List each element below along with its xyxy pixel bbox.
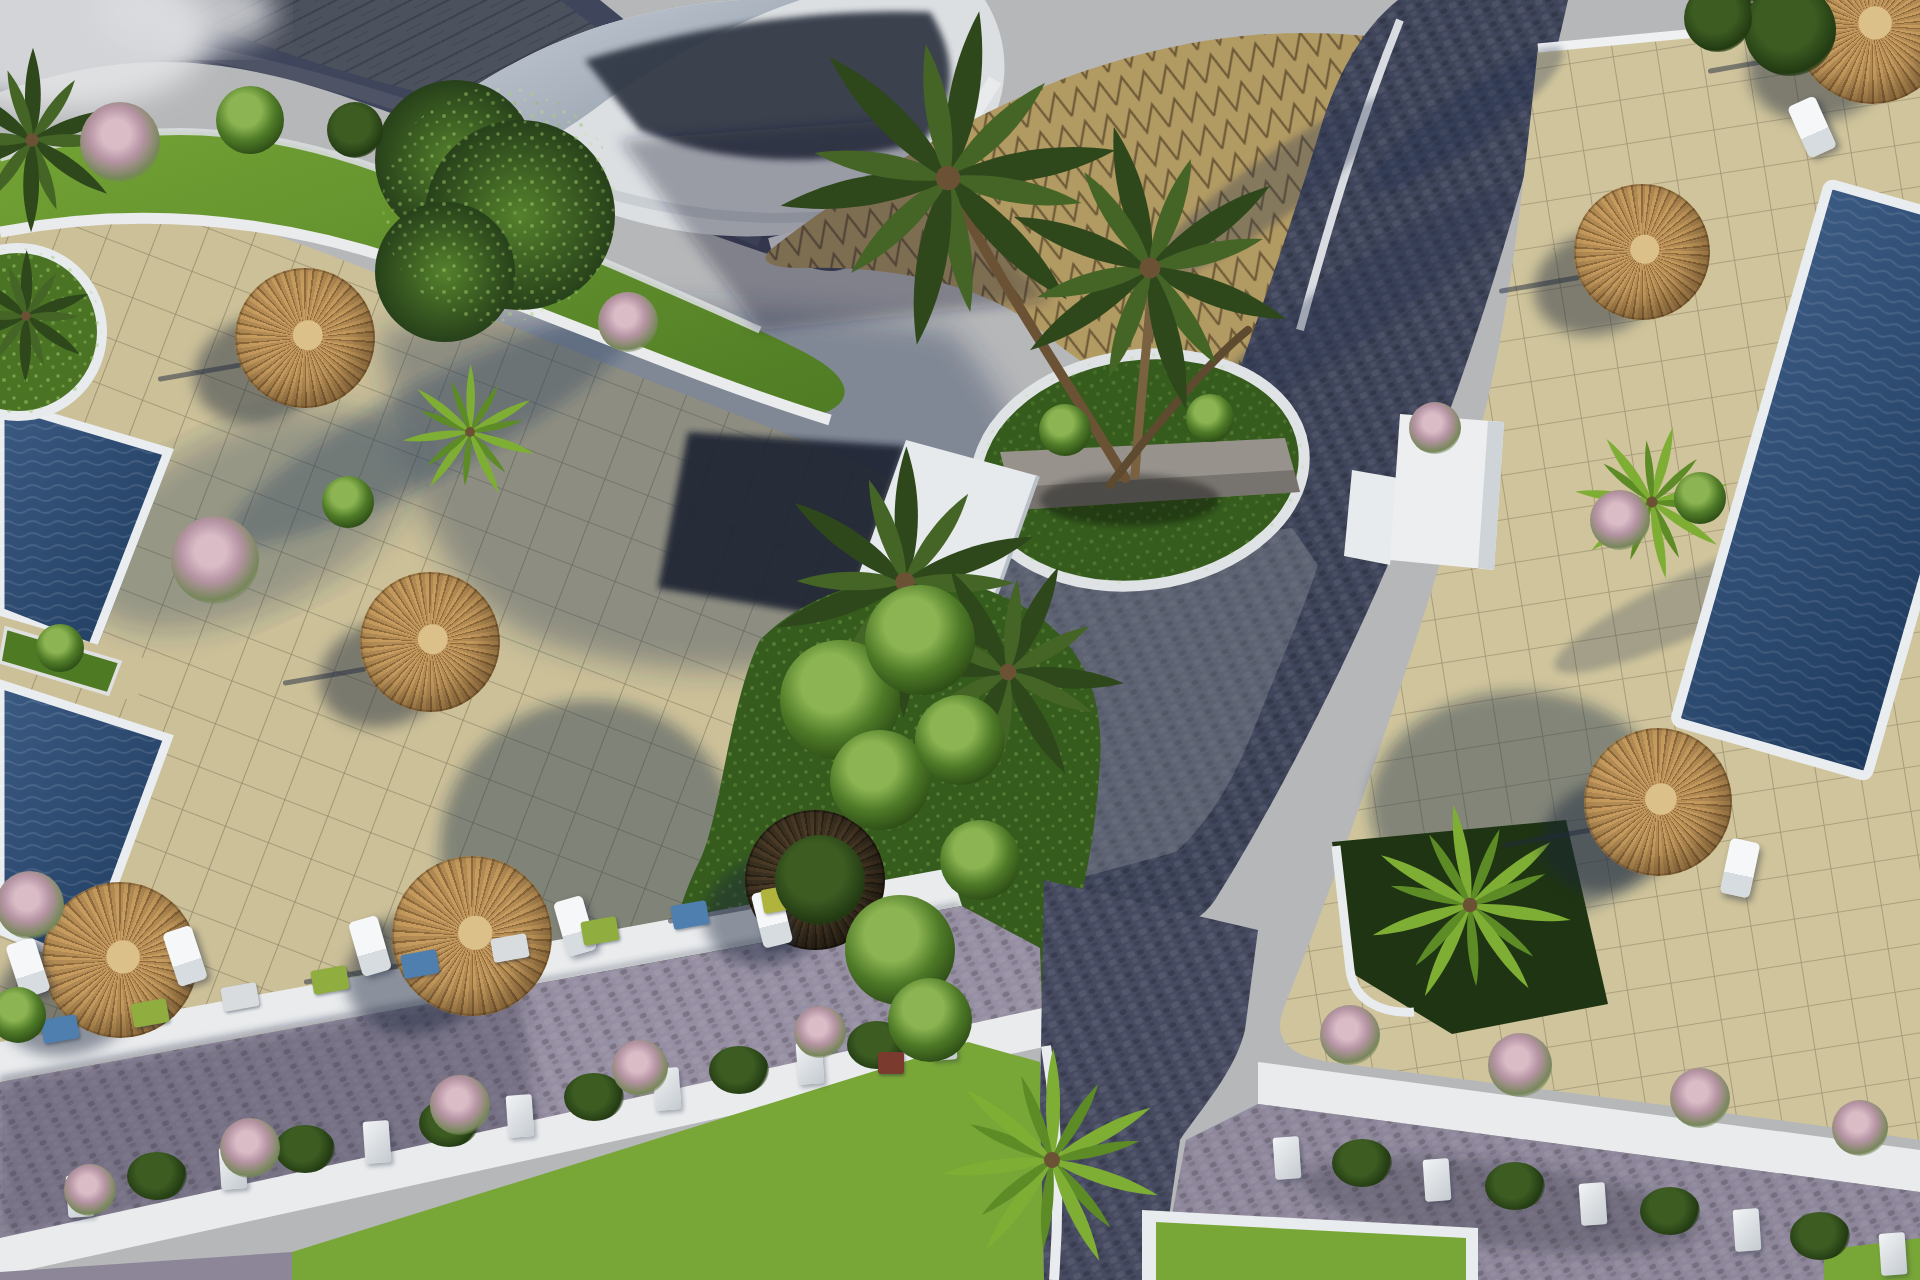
flowering-shrub: [1409, 402, 1461, 454]
flowering-shrub: [794, 1006, 846, 1058]
shrub: [36, 624, 84, 672]
parasol-straw: [1574, 184, 1710, 320]
parasol-straw: [392, 856, 552, 1016]
shrub: [775, 835, 865, 925]
flowering-shrub: [430, 1075, 490, 1135]
shrub: [1674, 472, 1726, 524]
scene-objects: [0, 0, 1920, 1280]
road-hedge-shrub: [709, 1046, 769, 1094]
shrub: [940, 820, 1020, 900]
storage-crate: [878, 1052, 904, 1074]
mini-planter: [580, 916, 620, 946]
flowering-shrub: [598, 292, 658, 352]
shrub: [1039, 404, 1091, 456]
road-hedge-shrub: [1640, 1187, 1700, 1235]
flowering-shrub: [1670, 1068, 1730, 1128]
flowering-shrub: [171, 516, 259, 604]
planter-post: [1879, 1232, 1908, 1276]
mini-planter: [310, 965, 350, 995]
parasol-straw: [1584, 728, 1732, 876]
flowering-shrub: [1320, 1005, 1380, 1065]
planter-post: [506, 1094, 535, 1138]
shrub: [915, 695, 1005, 785]
parasol-straw: [360, 572, 500, 712]
parasol-straw: [235, 268, 375, 408]
shrub: [1186, 394, 1234, 442]
road-hedge-shrub: [275, 1125, 335, 1173]
planter-post: [1273, 1136, 1302, 1180]
road-hedge-shrub: [1485, 1162, 1545, 1210]
flowering-shrub: [1488, 1033, 1552, 1097]
flowering-shrub: [64, 1164, 116, 1216]
planter-post: [363, 1120, 392, 1164]
flowering-shrub: [80, 102, 160, 182]
shrub: [865, 585, 975, 695]
road-hedge-shrub: [1790, 1212, 1850, 1260]
sun-lounger: [1720, 837, 1761, 898]
mini-planter: [220, 982, 260, 1012]
shrub: [322, 476, 374, 528]
flowering-shrub: [612, 1040, 668, 1096]
planter-post: [1423, 1158, 1452, 1202]
shrub: [1684, 0, 1752, 52]
flowering-shrub: [1832, 1100, 1888, 1156]
shrub: [216, 86, 284, 154]
flowering-shrub: [1590, 490, 1650, 550]
flowering-shrub: [220, 1118, 280, 1178]
road-hedge-shrub: [127, 1152, 187, 1200]
shrub: [327, 102, 383, 158]
planter-post: [1579, 1182, 1608, 1226]
planter-post: [1733, 1208, 1762, 1252]
road-hedge-shrub: [1332, 1139, 1392, 1187]
aerial-render-canvas: [0, 0, 1920, 1280]
shrub: [888, 978, 972, 1062]
